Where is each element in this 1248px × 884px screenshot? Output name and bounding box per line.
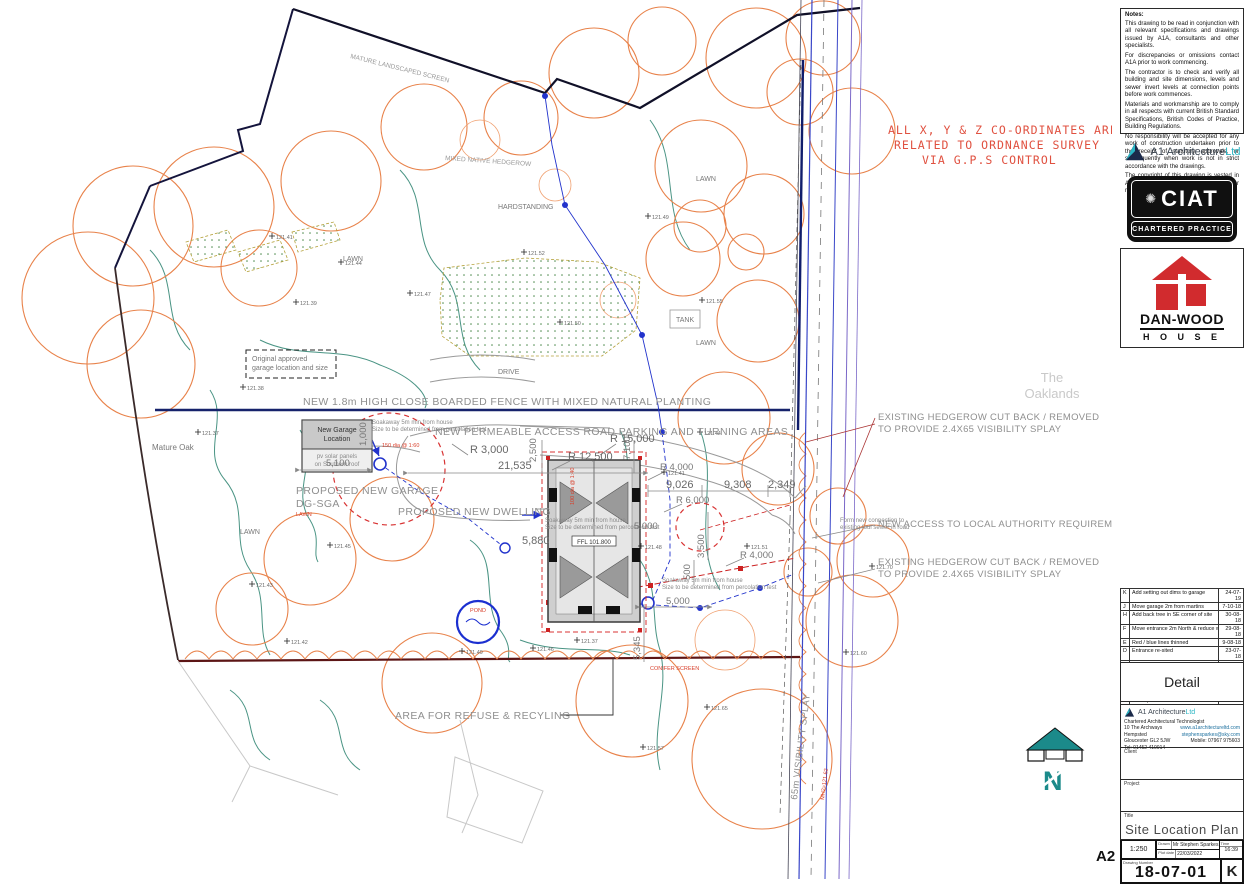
- road-lines: [780, 0, 862, 879]
- hardstanding-label: HARDSTANDING: [498, 204, 553, 211]
- oaklands-label-2: Oaklands: [1025, 386, 1080, 401]
- mature-oak-label: Mature Oak: [152, 443, 195, 452]
- svg-text:121.37: 121.37: [581, 639, 598, 645]
- svg-text:R 4,000: R 4,000: [740, 550, 773, 561]
- danwood-name: DAN-WOOD: [1140, 312, 1224, 329]
- ciat-emblem-icon: ✺: [1145, 191, 1156, 207]
- original-garage: Original approved garage location and si…: [246, 350, 336, 378]
- ciat-acronym: CIAT: [1161, 186, 1219, 212]
- svg-text:Size to be determined from per: Size to be determined from percolation t…: [372, 427, 487, 433]
- drawing-title: Site Location Plan: [1124, 822, 1240, 837]
- telephone: Tel: 01452 410014: [1124, 745, 1170, 752]
- svg-text:garage location and size: garage location and size: [252, 365, 328, 372]
- access-req-label: NEW ACCESS TO LOCAL AUTHORITY REQUIREMEN…: [878, 519, 1112, 530]
- garage-label-2: DG-SGA: [296, 498, 340, 510]
- plot-time: 16:39: [1220, 847, 1242, 853]
- svg-text:Size to be determined from per: Size to be determined from percolation t…: [662, 585, 777, 591]
- drawn-by: Mr Stephen Sparkes: [1172, 842, 1220, 848]
- svg-text:5,100: 5,100: [326, 458, 350, 469]
- svg-text:121.52: 121.52: [528, 251, 545, 257]
- pond: POND: [457, 601, 499, 643]
- oaklands-label-1: The: [1041, 370, 1063, 385]
- svg-text:121.42: 121.42: [291, 640, 308, 646]
- svg-text:121.43: 121.43: [256, 583, 273, 589]
- svg-text:Size to be determined from per: Size to be determined from percolation t…: [545, 525, 660, 531]
- svg-text:1,000: 1,000: [358, 422, 369, 446]
- north-letter: N: [1043, 766, 1063, 796]
- ffl-label: FFL 101.800: [577, 540, 611, 546]
- a1-ltd: Ltd: [1225, 146, 1240, 158]
- table-row: HAdd back tree in SE corner of site30-08…: [1120, 610, 1244, 624]
- site-plan-canvas: POND Original approved garage location a…: [0, 0, 1112, 879]
- a1-architecture-logo: A1 ArchitectureLtd: [1120, 134, 1244, 170]
- danwood-house-text: H O U S E: [1143, 332, 1221, 342]
- svg-text:Soakaway 5m min from house: Soakaway 5m min from house: [545, 518, 626, 524]
- adjacent-plot-lines: [178, 661, 543, 843]
- drawing-number-row: Drawing Number 18-07-01 K: [1120, 860, 1244, 884]
- hedgerow-label-1b: TO PROVIDE 2.4X65 VISIBILITY SPLAY: [878, 424, 1062, 435]
- svg-text:121.49: 121.49: [466, 650, 483, 656]
- ciat-subtitle: CHARTERED PRACTICE: [1131, 221, 1233, 237]
- svg-text:121.65: 121.65: [711, 706, 728, 712]
- svg-text:121.47: 121.47: [414, 292, 431, 298]
- website[interactable]: www.a1architectureltd.com: [1180, 725, 1240, 732]
- svg-text:5,000: 5,000: [666, 596, 690, 607]
- hedgerow-label-1a: EXISTING HEDGEROW CUT BACK / REMOVED: [878, 412, 1099, 423]
- notes-title: Notes:: [1125, 12, 1239, 20]
- svg-text:121.41: 121.41: [668, 471, 685, 477]
- refuse-label: AREA FOR REFUSE & RECYLING: [395, 710, 571, 722]
- svg-text:121.48: 121.48: [645, 545, 662, 551]
- svg-text:21,535: 21,535: [498, 460, 532, 472]
- svg-text:MATURE LANDSCAPED SCREEN: MATURE LANDSCAPED SCREEN: [350, 53, 451, 84]
- svg-text:121.50: 121.50: [564, 321, 581, 327]
- architect-contact: A1 ArchitectureLtd Chartered Architectur…: [1120, 704, 1244, 748]
- svg-text:2,500: 2,500: [528, 438, 539, 462]
- table-row: ERed / blue lines thinned9-08-18: [1120, 638, 1244, 646]
- title-block: A1 ArchitectureLtd Chartered Architectur…: [1120, 704, 1244, 884]
- garage-label-1: PROPOSED NEW GARAGE: [296, 485, 438, 497]
- svg-text:LAWN: LAWN: [696, 340, 716, 347]
- svg-text:LAWN: LAWN: [343, 256, 363, 263]
- danwood-house-icon: [1150, 254, 1214, 312]
- svg-text:121.38: 121.38: [247, 386, 264, 392]
- address-line-3: Gloucester GL2 5JW: [1124, 738, 1170, 745]
- svg-text:R 12,500: R 12,500: [568, 451, 613, 463]
- svg-text:121.57: 121.57: [647, 746, 664, 752]
- svg-text:R 6,000: R 6,000: [676, 495, 709, 506]
- visibility-splay-label: 65m VISIBILITY SPLAY: [789, 693, 813, 800]
- table-row: FMove entrance 2m North & reduce width29…: [1120, 624, 1244, 638]
- svg-text:2,349: 2,349: [768, 479, 796, 491]
- svg-text:9,308: 9,308: [724, 479, 752, 491]
- svg-text:Soakaway 5m min from house: Soakaway 5m min from house: [662, 578, 743, 584]
- title-section: Title Site Location Plan: [1120, 812, 1244, 840]
- svg-text:LAWN: LAWN: [240, 529, 260, 536]
- svg-text:Soakaway 5m min from house: Soakaway 5m min from house: [372, 420, 453, 426]
- annotation-leaders: [806, 418, 875, 583]
- svg-text:7,100: 7,100: [622, 436, 633, 460]
- contour-lines: [150, 120, 720, 770]
- svg-text:VIA G.P.S CONTROL: VIA G.P.S CONTROL: [922, 153, 1057, 167]
- svg-text:121.41: 121.41: [276, 235, 293, 241]
- svg-text:121.45: 121.45: [334, 544, 351, 550]
- svg-text:121.60: 121.60: [850, 651, 867, 657]
- svg-text:LAWN: LAWN: [696, 176, 716, 183]
- drive-label: DRIVE: [498, 369, 520, 376]
- drawing-sheet: { "sheet": {"size": "A2"}, "notes": { "t…: [0, 0, 1248, 879]
- svg-text:100 dia @ 1:40: 100 dia @ 1:40: [570, 468, 576, 505]
- svg-text:ALL X, Y & Z CO-ORDINATES ARE: ALL X, Y & Z CO-ORDINATES ARE: [888, 123, 1112, 137]
- svg-text:Original approved: Original approved: [252, 356, 307, 363]
- planting-patches: [186, 222, 640, 356]
- svg-text:3,500: 3,500: [696, 534, 707, 558]
- scale-row: 1:250 DrawnMr Stephen Sparkes Plot date2…: [1120, 840, 1244, 860]
- fence-label: NEW 1.8m HIGH CLOSE BOARDED FENCE WITH M…: [303, 396, 711, 408]
- svg-text:existing foul sewer in road: existing foul sewer in road: [840, 525, 909, 531]
- manhole-label: MH2=121.62: [820, 768, 830, 800]
- svg-text:5,880: 5,880: [522, 535, 550, 547]
- tank-label: TANK: [676, 317, 694, 324]
- detail-box: Detail: [1120, 662, 1244, 702]
- plot-date: 22/03/2022: [1176, 851, 1203, 857]
- refuse-leader: [560, 658, 613, 715]
- scale-value: 1:250: [1122, 841, 1157, 858]
- danwood-logo: DAN-WOOD H O U S E: [1120, 248, 1244, 348]
- table-row: JMove garage 2m from martins7-10-18: [1120, 602, 1244, 610]
- svg-text:121.49: 121.49: [652, 215, 669, 221]
- table-row: KAdd setting out dims to garage24-07-19: [1120, 588, 1244, 602]
- a1-logo-icon: [1124, 141, 1146, 163]
- svg-text:R 3,000: R 3,000: [470, 444, 509, 456]
- notes-box: Notes: This drawing to be read in conjun…: [1120, 8, 1244, 134]
- dwelling-label: PROPOSED NEW DWELLING: [398, 506, 551, 518]
- conifer-label: CONIFER SCREEN: [650, 666, 699, 672]
- access-road-label: NEW PERMEABLE ACCESS ROAD PARKING AND TU…: [435, 426, 788, 438]
- svg-text:121.55: 121.55: [706, 299, 723, 305]
- sheet-size-label: A2: [1096, 848, 1115, 865]
- table-row: DEntrance re-sited23-07-18: [1120, 646, 1244, 660]
- hedgerow-label-2a: EXISTING HEDGEROW CUT BACK / REMOVED: [878, 557, 1099, 568]
- svg-text:Location: Location: [324, 436, 351, 443]
- svg-text:150 dia @ 1:60: 150 dia @ 1:60: [382, 443, 419, 449]
- svg-text:5,345: 5,345: [632, 636, 643, 660]
- svg-text:121.46: 121.46: [537, 647, 554, 653]
- pond-label: POND: [470, 608, 486, 614]
- a1-name: A1 Architecture: [1151, 146, 1226, 158]
- client-section: Client: [1120, 748, 1244, 780]
- svg-text:LAWN: LAWN: [296, 512, 312, 518]
- north-arrow-icon: N: [1027, 728, 1083, 796]
- svg-text:New Garage: New Garage: [317, 427, 356, 434]
- site-plan-svg: POND Original approved garage location a…: [0, 0, 1112, 879]
- svg-text:121.51: 121.51: [751, 545, 768, 551]
- svg-text:Form new connection to: Form new connection to: [840, 518, 905, 524]
- a1-logo-small-icon: [1124, 707, 1135, 718]
- ciat-badge: ✺ CIAT CHARTERED PRACTICE: [1127, 176, 1237, 242]
- hedgerow-label-2b: TO PROVIDE 2.4X65 VISIBILITY SPLAY: [878, 569, 1062, 580]
- svg-text:121.37: 121.37: [202, 431, 219, 437]
- project-section: Project: [1120, 780, 1244, 812]
- mobile: Mobile: 07967 975603: [1180, 738, 1240, 745]
- coordinates-note: ALL X, Y & Z CO-ORDINATES ARE RELATED TO…: [888, 123, 1112, 167]
- tree-canopies: [22, 1, 909, 829]
- svg-text:RELATED TO ORDNANCE SURVEY: RELATED TO ORDNANCE SURVEY: [894, 138, 1100, 152]
- svg-text:121.39: 121.39: [300, 301, 317, 307]
- svg-text:9,026: 9,026: [666, 479, 694, 491]
- proposed-dwelling: FFL 101.800: [542, 452, 646, 632]
- svg-text:MIXED NATIVE HEDGEROW: MIXED NATIVE HEDGEROW: [445, 155, 532, 168]
